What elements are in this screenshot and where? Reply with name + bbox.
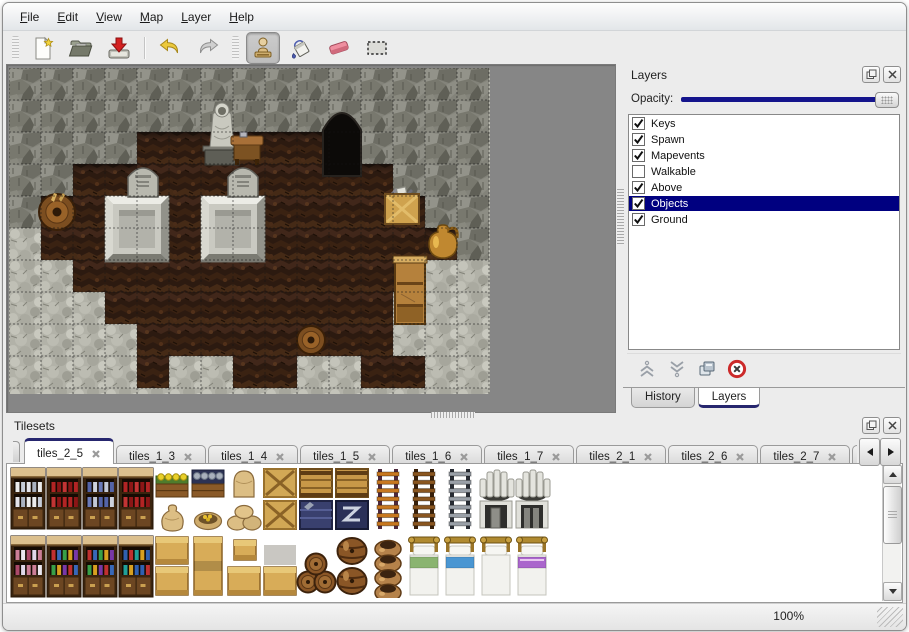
redo-button[interactable] (191, 32, 225, 64)
tileset-scrollbar[interactable] (882, 465, 901, 601)
map-canvas[interactable] (9, 68, 490, 394)
checked-icon (632, 181, 645, 194)
scroll-down-button[interactable] (883, 582, 902, 601)
layer-name: Walkable (651, 166, 696, 178)
scrollbar-thumb[interactable] (883, 486, 902, 544)
tab-history[interactable]: History (631, 388, 695, 408)
window-resize-grip[interactable] (877, 607, 903, 627)
close-tab-icon[interactable] (275, 452, 285, 462)
new-file-icon (30, 35, 56, 61)
menu-help[interactable]: Help (220, 7, 263, 27)
stamp-tool-icon (250, 35, 276, 61)
stamp-button[interactable] (246, 32, 280, 64)
checked-icon (632, 133, 645, 146)
tileset-tab-tiles_1_7[interactable]: tiles_1_7 (484, 445, 574, 465)
lower-layer-button[interactable] (665, 357, 689, 381)
arrow-down-icon (888, 588, 898, 595)
tilesets-panel: Tilesets tiles_2_5tiles_1_3tiles_1_4tile… (6, 416, 903, 603)
layer-row-spawn[interactable]: Spawn (629, 132, 899, 147)
layer-name: Spawn (651, 134, 685, 146)
checked-icon (632, 149, 645, 162)
tilesets-panel-title: Tilesets (14, 419, 55, 433)
tileset-tab-tiles_1_3[interactable]: tiles_1_3 (116, 445, 206, 465)
menu-map[interactable]: Map (131, 7, 172, 27)
close-tab-icon[interactable] (183, 452, 193, 462)
menu-layer[interactable]: Layer (172, 7, 220, 27)
layer-row-ground[interactable]: Ground (629, 212, 899, 227)
panel-tabs: HistoryLayers (623, 387, 905, 413)
clipped-tab-edge[interactable] (13, 441, 20, 462)
layer-row-above[interactable]: Above (629, 180, 899, 195)
tileset-canvas[interactable] (8, 465, 866, 603)
status-bar: 100% (3, 603, 906, 630)
tileset-tab-label: tiles_1_3 (129, 451, 175, 463)
tileset-tab-label: tiles_2_5 (37, 448, 83, 460)
toolbar-drag-handle[interactable] (12, 36, 19, 60)
select-tool-icon (364, 35, 390, 61)
layer-row-objects[interactable]: Objects (629, 196, 899, 211)
tilesets-close-icon[interactable] (883, 417, 901, 434)
layer-list[interactable]: KeysSpawnMapeventsWalkableAboveObjectsGr… (628, 114, 900, 350)
layer-row-mapevents[interactable]: Mapevents (629, 148, 899, 163)
layer-row-walkable[interactable]: Walkable (629, 164, 899, 179)
close-tab-icon[interactable] (459, 452, 469, 462)
layer-buttons-row (627, 353, 901, 384)
tileset-tab-tiles_2_7[interactable]: tiles_2_7 (760, 445, 850, 465)
tab-scroll-left-button[interactable] (859, 438, 880, 466)
tileset-tab-tiles_2_5[interactable]: tiles_2_5 (24, 438, 114, 464)
layers-float-icon[interactable] (862, 66, 880, 83)
tileset-tab-tiles_1_4[interactable]: tiles_1_4 (208, 445, 298, 465)
arrow-up-icon (888, 471, 898, 478)
checked-icon (632, 197, 645, 210)
toolbar-drag-handle[interactable] (232, 36, 239, 60)
toolbar-separator (144, 37, 145, 59)
menu-file[interactable]: File (11, 7, 48, 27)
select-button[interactable] (360, 32, 394, 64)
layers-panel-title: Layers (631, 68, 667, 82)
layer-row-keys[interactable]: Keys (629, 116, 899, 131)
map-view-pane[interactable] (6, 64, 616, 413)
close-tab-icon[interactable] (735, 452, 745, 462)
tileset-tab-tiles_2_1[interactable]: tiles_2_1 (576, 445, 666, 465)
close-tab-icon[interactable] (643, 452, 653, 462)
tileset-tab-label: tiles_1_4 (221, 451, 267, 463)
layer-visibility-checkbox[interactable] (632, 117, 645, 130)
checked-icon (632, 213, 645, 226)
eraser-button[interactable] (322, 32, 356, 64)
menu-view[interactable]: View (87, 7, 131, 27)
raise-layer-icon (637, 359, 657, 379)
layers-panel: Layers Opacity: KeysSpawnMapeventsWalkab… (623, 64, 905, 412)
open-folder-icon (68, 35, 94, 61)
close-tab-icon[interactable] (827, 452, 837, 462)
layer-visibility-checkbox[interactable] (632, 213, 645, 226)
tab-scroll-right-button[interactable] (880, 438, 901, 466)
close-tab-icon[interactable] (551, 452, 561, 462)
scroll-up-button[interactable] (883, 465, 902, 484)
tilesets-float-icon[interactable] (862, 417, 880, 434)
layer-visibility-checkbox[interactable] (632, 181, 645, 194)
layer-name: Mapevents (651, 150, 705, 162)
tileset-tab-label: tiles_1_6 (405, 451, 451, 463)
undo-button[interactable] (153, 32, 187, 64)
close-tab-icon[interactable] (91, 449, 101, 459)
layers-close-icon[interactable] (883, 66, 901, 83)
menu-bar: FileEditViewMapLayerHelp (3, 3, 906, 31)
redo-icon (195, 35, 221, 61)
undo-icon (157, 35, 183, 61)
layer-name: Above (651, 182, 682, 194)
opacity-slider-handle[interactable] (875, 92, 899, 108)
tileset-tab-tiles_2_6[interactable]: tiles_2_6 (668, 445, 758, 465)
opacity-label: Opacity: (631, 93, 673, 105)
layer-visibility-checkbox[interactable] (632, 165, 645, 178)
tileset-tab-label: tiles_2_1 (589, 451, 635, 463)
layer-name: Ground (651, 214, 688, 226)
fill-tool-icon (288, 35, 314, 61)
layer-visibility-checkbox[interactable] (632, 149, 645, 162)
opacity-slider-track[interactable] (681, 97, 899, 102)
eraser-tool-icon (326, 35, 352, 61)
new-button[interactable] (26, 32, 60, 64)
open-button[interactable] (64, 32, 98, 64)
app-window: FileEditViewMapLayerHelp Layers Opacity:… (2, 2, 907, 631)
fill-button[interactable] (284, 32, 318, 64)
arrow-right-icon (887, 447, 895, 457)
layer-visibility-checkbox[interactable] (632, 197, 645, 210)
zoom-level: 100% (773, 609, 804, 623)
unchecked-icon (632, 165, 645, 178)
delete-layer-button[interactable] (725, 357, 749, 381)
layer-name: Objects (651, 198, 688, 210)
toolbar (3, 31, 906, 64)
tab-layers[interactable]: Layers (698, 388, 761, 408)
arrow-left-icon (866, 447, 874, 457)
duplicate-layer-icon (697, 359, 717, 379)
save-button[interactable] (102, 32, 136, 64)
menu-edit[interactable]: Edit (48, 7, 87, 27)
tileset-tab-tiles_1_6[interactable]: tiles_1_6 (392, 445, 482, 465)
tileset-tab-label: tiles_2_6 (681, 451, 727, 463)
lower-layer-icon (667, 359, 687, 379)
tileset-tab-label: tiles_1_5 (313, 451, 359, 463)
duplicate-layer-button[interactable] (695, 357, 719, 381)
delete-layer-icon (727, 359, 747, 379)
layer-name: Keys (651, 118, 675, 130)
layer-visibility-checkbox[interactable] (632, 133, 645, 146)
save-icon (106, 35, 132, 61)
tileset-tab-bar: tiles_2_5tiles_1_3tiles_1_4tiles_1_5tile… (6, 435, 857, 464)
close-tab-icon[interactable] (367, 452, 377, 462)
tileset-tab-label: tiles_2_7 (773, 451, 819, 463)
tileset-tab-tiles_1_5[interactable]: tiles_1_5 (300, 445, 390, 465)
raise-layer-button[interactable] (635, 357, 659, 381)
checked-icon (632, 117, 645, 130)
tileset-tab-tiles[interactable]: tiles_ (852, 445, 857, 465)
tileset-view[interactable] (6, 463, 903, 603)
tileset-tab-label: tiles_1_7 (497, 451, 543, 463)
opacity-slider[interactable] (681, 91, 899, 107)
